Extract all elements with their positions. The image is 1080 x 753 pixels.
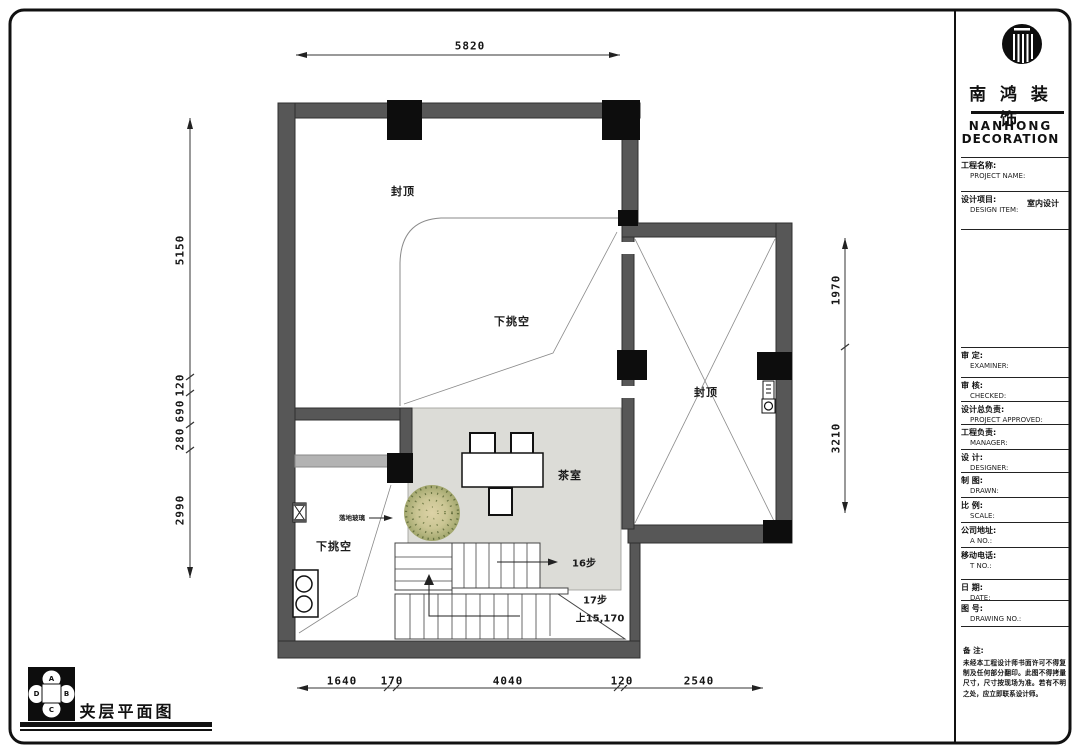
room-label-void-lower: 下挑空 bbox=[316, 538, 352, 554]
stove-icon bbox=[293, 570, 318, 617]
dim-bottom-170: 170 bbox=[381, 675, 404, 688]
dim-left-280: 280 bbox=[174, 428, 187, 451]
field-designer: 设 计: DESIGNER: bbox=[961, 450, 1069, 473]
room-label-void-main: 下挑空 bbox=[494, 313, 530, 329]
field-label-en: EXAMINER: bbox=[970, 362, 1069, 370]
dim-right-3210: 3210 bbox=[830, 423, 843, 454]
field-label-cn: 移动电话: bbox=[961, 550, 1069, 561]
room-label-tea-room: 茶室 bbox=[558, 467, 582, 483]
field-address: 公司地址: A NO.: bbox=[961, 523, 1069, 548]
field-label-cn: 工程名称: bbox=[961, 160, 1069, 171]
compass-letter-a: A bbox=[49, 675, 54, 683]
title-underline-thin bbox=[20, 729, 212, 731]
dim-bottom-120: 120 bbox=[611, 675, 634, 688]
field-label-cn: 审 定: bbox=[961, 350, 1069, 361]
field-label-cn: 图 号: bbox=[961, 603, 1069, 614]
field-examiner: 审 定: EXAMINER: bbox=[961, 347, 1069, 378]
notes-label: 备 注: bbox=[963, 645, 1066, 656]
field-label-cn: 审 核: bbox=[961, 380, 1069, 391]
dim-left-690: 690 bbox=[174, 400, 187, 423]
field-label-en: SCALE: bbox=[970, 512, 1069, 520]
room-label-capped-top: 封顶 bbox=[391, 183, 415, 199]
notes-text: 未经本工程设计师书面许可不得复制及任何部分翻印。此图不得拷量尺寸，尺寸按现场为准… bbox=[963, 658, 1066, 699]
field-value: 室内设计 bbox=[1027, 198, 1059, 209]
drawing-sheet: 封顶 下挑空 茶室 封顶 下挑空 落地玻璃 16步 17步 上15,170 58… bbox=[0, 0, 1080, 753]
field-label-cn: 制 图: bbox=[961, 475, 1069, 486]
field-phone: 移动电话: T NO.: bbox=[961, 548, 1069, 580]
field-project-name: 工程名称: PROJECT NAME: bbox=[961, 157, 1069, 192]
field-label-en: T NO.: bbox=[970, 562, 1069, 570]
dim-right-1970: 1970 bbox=[830, 275, 843, 306]
compass-letter-b: B bbox=[64, 690, 69, 698]
field-drawn: 制 图: DRAWN: bbox=[961, 473, 1069, 498]
field-checked: 审 核: CHECKED: bbox=[961, 378, 1069, 402]
room-label-capped-right: 封顶 bbox=[694, 384, 718, 400]
field-label-cn: 设计总负责: bbox=[961, 404, 1069, 415]
drawing-title: 夹层平面图 bbox=[79, 698, 174, 722]
field-label-en: PROJECT NAME: bbox=[970, 172, 1069, 180]
field-label-cn: 日 期: bbox=[961, 582, 1069, 593]
compass-letter-d: D bbox=[34, 690, 40, 698]
field-project-approved: 设计总负责: PROJECT APPROVED: bbox=[961, 402, 1069, 425]
dim-left-2990: 2990 bbox=[174, 495, 187, 526]
brand-name-en-1: NANHONG bbox=[955, 119, 1066, 133]
title-underline-thick bbox=[20, 722, 212, 727]
field-label-cn: 设 计: bbox=[961, 452, 1069, 463]
dim-top-5820: 5820 bbox=[455, 40, 486, 53]
plant-icon bbox=[404, 485, 460, 541]
field-label-en: CHECKED: bbox=[970, 392, 1069, 400]
field-label-en: DRAWN: bbox=[970, 487, 1069, 495]
annotation-floor-glass: 落地玻璃 bbox=[339, 512, 365, 522]
field-label-en: PROJECT APPROVED: bbox=[970, 416, 1069, 424]
field-label-en: MANAGER: bbox=[970, 439, 1069, 447]
dim-left-5150: 5150 bbox=[174, 235, 187, 266]
panel-icon bbox=[762, 381, 775, 413]
dim-bottom-2540: 2540 bbox=[684, 675, 715, 688]
notes-block: 备 注: 未经本工程设计师书面许可不得复制及任何部分翻印。此图不得拷量尺寸，尺寸… bbox=[963, 645, 1066, 699]
dim-bottom-4040: 4040 bbox=[493, 675, 524, 688]
dim-left-120: 120 bbox=[174, 374, 187, 397]
title-block: 南 鸿 装 饰 NANHONG DECORATION 工程名称: PROJECT… bbox=[955, 10, 1072, 743]
field-scale: 比 例: SCALE: bbox=[961, 498, 1069, 523]
field-label-cn: 比 例: bbox=[961, 500, 1069, 511]
field-label-cn: 工程负责: bbox=[961, 427, 1069, 438]
field-design-item: 设计项目: DESIGN ITEM: 室内设计 bbox=[961, 192, 1069, 230]
field-label-cn: 公司地址: bbox=[961, 525, 1069, 536]
field-label-en: A NO.: bbox=[970, 537, 1069, 545]
field-date: 日 期: DATE: bbox=[961, 580, 1069, 601]
dim-bottom-1640: 1640 bbox=[327, 675, 358, 688]
duct-box-icon bbox=[293, 503, 306, 522]
brand-name-en-2: DECORATION bbox=[955, 132, 1066, 146]
field-label-en: DRAWING NO.: bbox=[970, 615, 1069, 623]
field-manager: 工程负责: MANAGER: bbox=[961, 425, 1069, 450]
brand-rule bbox=[971, 111, 1064, 114]
annotation-up-elevation: 上15,170 bbox=[576, 610, 625, 625]
floor-plan-geometry bbox=[0, 0, 1080, 753]
annotation-steps-17: 17步 bbox=[583, 592, 607, 607]
compass-letter-c: C bbox=[49, 706, 54, 714]
field-label-en: DESIGNER: bbox=[970, 464, 1069, 472]
annotation-steps-16: 16步 bbox=[572, 555, 596, 570]
field-drawing-no: 图 号: DRAWING NO.: bbox=[961, 601, 1069, 627]
